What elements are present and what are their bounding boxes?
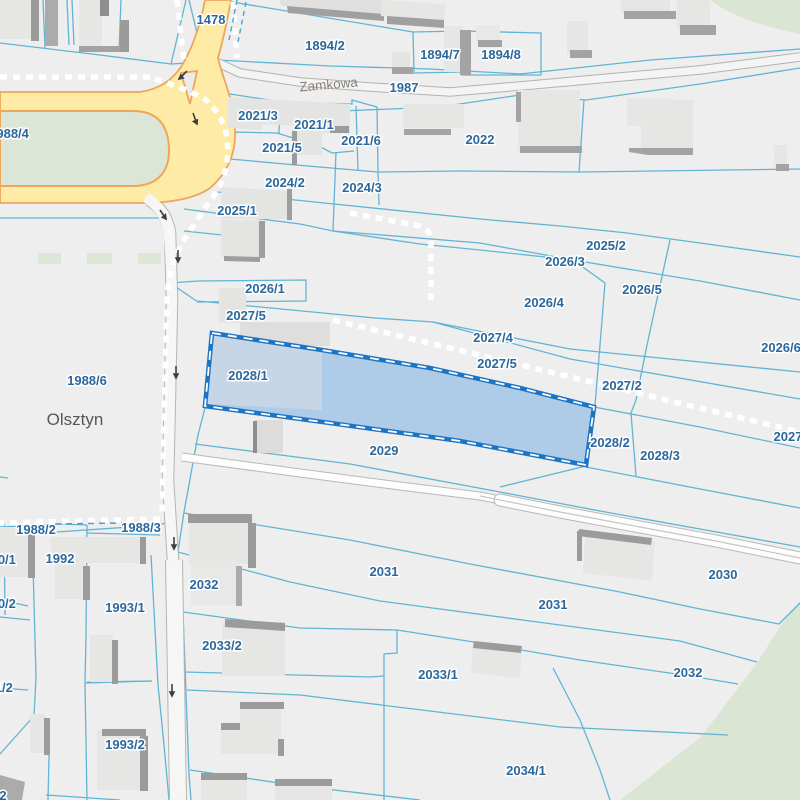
- svg-text:2032: 2032: [190, 577, 219, 592]
- svg-text:2026/5: 2026/5: [622, 282, 662, 297]
- svg-text:2028/3: 2028/3: [640, 448, 680, 463]
- svg-text:2021/5: 2021/5: [262, 140, 302, 155]
- svg-text:1894/7: 1894/7: [420, 47, 460, 62]
- svg-text:2021/1: 2021/1: [294, 117, 334, 132]
- svg-text:2027: 2027: [774, 429, 800, 444]
- svg-text:2028/1: 2028/1: [228, 368, 268, 383]
- svg-text:2024/3: 2024/3: [342, 180, 382, 195]
- svg-text:2031: 2031: [370, 564, 399, 579]
- svg-text:2026/3: 2026/3: [545, 254, 585, 269]
- svg-text:1987: 1987: [390, 80, 419, 95]
- svg-text:2027/2: 2027/2: [602, 378, 642, 393]
- svg-text:2025/1: 2025/1: [217, 203, 257, 218]
- svg-text:1894/8: 1894/8: [481, 47, 521, 62]
- svg-text:2027/5: 2027/5: [477, 356, 517, 371]
- svg-text:1990/2: 1990/2: [0, 596, 16, 611]
- svg-text:2021/3: 2021/3: [238, 108, 278, 123]
- svg-text:2022: 2022: [466, 132, 495, 147]
- svg-text:2030: 2030: [709, 567, 738, 582]
- svg-text:2025/2: 2025/2: [586, 238, 626, 253]
- svg-text:1894/2: 1894/2: [305, 38, 345, 53]
- svg-text:2032: 2032: [674, 665, 703, 680]
- svg-text:1988/4: 1988/4: [0, 126, 30, 141]
- svg-text:2: 2: [0, 788, 7, 800]
- svg-text:2034/1: 2034/1: [506, 763, 546, 778]
- svg-text:1990/1: 1990/1: [0, 552, 16, 567]
- svg-text:2026/1: 2026/1: [245, 281, 285, 296]
- svg-text:2027/5: 2027/5: [226, 308, 266, 323]
- svg-text:1988/2: 1988/2: [16, 522, 56, 537]
- svg-text:1478: 1478: [197, 12, 226, 27]
- svg-text:2031: 2031: [539, 597, 568, 612]
- svg-text:2029: 2029: [370, 443, 399, 458]
- svg-text:1993/2: 1993/2: [105, 737, 145, 752]
- svg-text:2021/6: 2021/6: [341, 133, 381, 148]
- svg-text:2026/4: 2026/4: [524, 295, 565, 310]
- svg-text:2026/6: 2026/6: [761, 340, 800, 355]
- svg-text:2028/2: 2028/2: [590, 435, 630, 450]
- svg-text:1992: 1992: [46, 551, 75, 566]
- svg-text:Olsztyn: Olsztyn: [47, 410, 104, 429]
- svg-text:1991/2: 1991/2: [0, 680, 13, 695]
- svg-text:1993/1: 1993/1: [105, 600, 145, 615]
- svg-text:2033/1: 2033/1: [418, 667, 458, 682]
- svg-text:1988/3: 1988/3: [121, 520, 161, 535]
- svg-text:2033/2: 2033/2: [202, 638, 242, 653]
- svg-text:1988/6: 1988/6: [67, 373, 107, 388]
- svg-text:2027/4: 2027/4: [473, 330, 514, 345]
- svg-text:2024/2: 2024/2: [265, 175, 305, 190]
